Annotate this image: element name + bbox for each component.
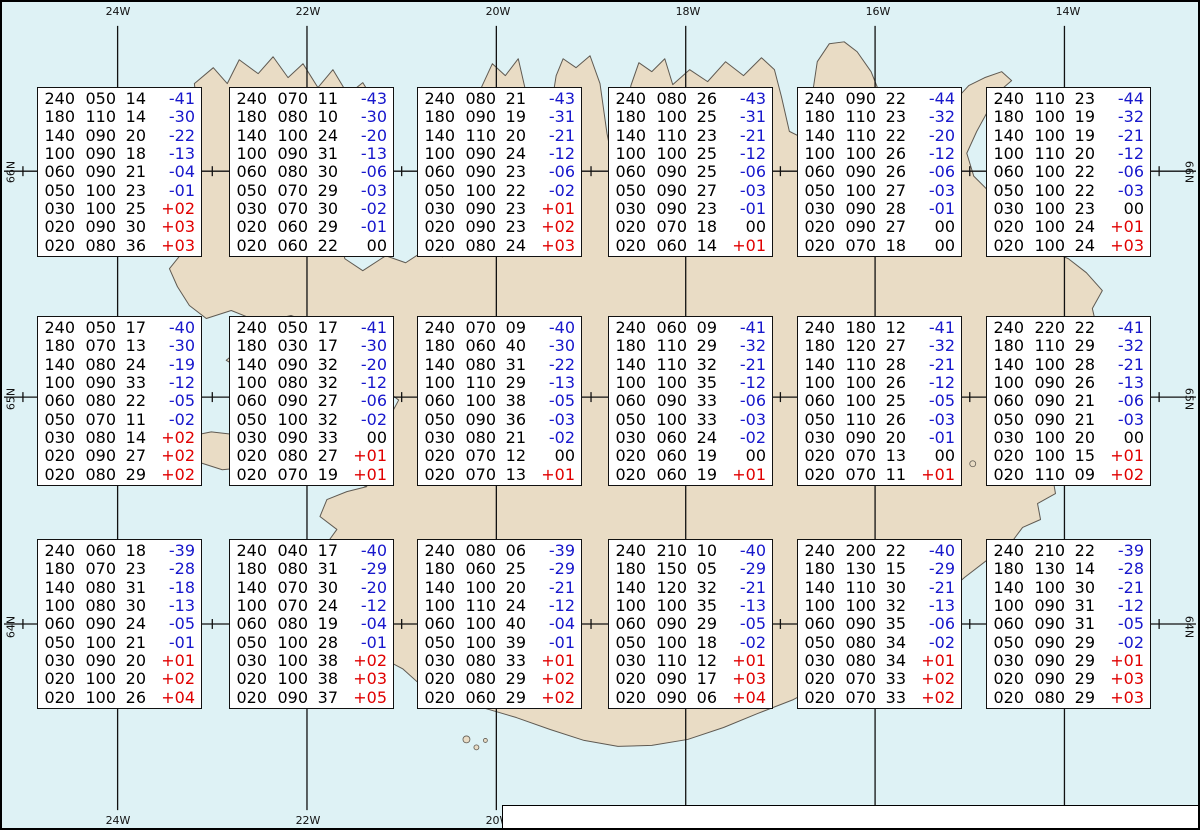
fl-value: 030 [42,652,75,670]
kt-value: 11 [876,466,906,484]
dir-value: 090 [835,429,876,447]
temp-value: -05 [906,392,955,410]
temp-value: +04 [146,689,195,707]
fl-value: 050 [234,411,267,429]
fl-value: 140 [42,579,75,597]
fl-value: 140 [422,127,455,145]
spot-row: 10010026-12 [802,145,955,163]
spot-box-64N-24W: 24006018-3918007023-2814008031-181000803… [37,539,202,709]
temp-value: -04 [338,615,387,633]
kt-value: 18 [876,237,906,255]
kt-value: 38 [308,670,338,688]
kt-value: 20 [496,579,526,597]
fl-value: 020 [422,689,455,707]
temp-value: -02 [526,429,575,447]
spot-box-66N-20W: 24008021-4318009019-3114011020-211000902… [417,87,582,257]
fl-value: 050 [234,182,267,200]
temp-value: -02 [526,182,575,200]
spot-row: 14011028-21 [802,356,955,374]
dir-value: 070 [646,218,687,236]
fl-value: 030 [42,200,75,218]
temp-value: -01 [906,200,955,218]
spot-row: 05011026-03 [802,411,955,429]
spot-row: 14011022-20 [802,127,955,145]
fl-value: 100 [422,374,455,392]
fl-value: 140 [422,579,455,597]
dir-value: 090 [75,447,116,465]
kt-value: 33 [876,670,906,688]
lat-label-left-65N: 65N [5,388,18,410]
spot-row: 02009023+02 [422,218,575,236]
spot-row: 24008026-43 [613,90,766,108]
dir-value: 080 [75,392,116,410]
fl-value: 180 [42,108,75,126]
spot-row: 18008010-30 [234,108,387,126]
dir-value: 090 [455,108,496,126]
spot-row: 03007030-02 [234,200,387,218]
temp-value: +03 [717,670,766,688]
kt-value: 18 [116,542,146,560]
spot-row: 02006029+02 [422,689,575,707]
spot-row: 24020022-40 [802,542,955,560]
temp-value: -12 [526,145,575,163]
dir-value: 100 [75,182,116,200]
spot-row: 24005017-41 [234,319,387,337]
spot-row: 14010024-20 [234,127,387,145]
temp-value: -29 [526,560,575,578]
kt-value: 22 [308,237,338,255]
fl-value: 050 [422,634,455,652]
kt-value: 33 [687,411,717,429]
dir-value: 100 [1024,200,1065,218]
fl-value: 240 [991,90,1024,108]
temp-value: -13 [906,597,955,615]
fl-value: 060 [422,392,455,410]
fl-value: 020 [613,237,646,255]
spot-row: 14010020-21 [422,579,575,597]
kt-value: 33 [116,374,146,392]
spot-row: 03008033+01 [422,652,575,670]
kt-value: 20 [496,127,526,145]
spot-row: 14010019-21 [991,127,1144,145]
dir-value: 070 [835,670,876,688]
lon-label-top-22W: 22W [296,5,321,18]
dir-value: 060 [646,466,687,484]
spot-row: 10009031-13 [234,145,387,163]
lon-label-top-16W: 16W [866,5,891,18]
dir-value: 100 [75,689,116,707]
temp-value: -31 [717,108,766,126]
fl-value: 020 [613,670,646,688]
temp-value: +02 [146,447,195,465]
kt-value: 31 [496,356,526,374]
dir-value: 090 [1024,615,1065,633]
dir-value: 090 [646,182,687,200]
temp-value: -21 [1095,127,1144,145]
kt-value: 27 [687,182,717,200]
kt-value: 19 [687,447,717,465]
kt-value: 24 [1065,237,1095,255]
spot-row: 03009023+01 [422,200,575,218]
kt-value: 27 [308,447,338,465]
dir-value: 060 [267,218,308,236]
temp-value: -39 [526,542,575,560]
kt-value: 23 [116,560,146,578]
temp-value: +01 [146,652,195,670]
temp-value: -05 [1095,615,1144,633]
dir-value: 090 [1024,597,1065,615]
dir-value: 100 [1024,579,1065,597]
fl-value: 180 [802,560,835,578]
temp-value: +01 [906,652,955,670]
fl-value: 060 [422,163,455,181]
kt-value: 29 [496,689,526,707]
spot-row: 02009006+04 [613,689,766,707]
temp-value: -21 [1095,579,1144,597]
dir-value: 070 [267,579,308,597]
lon-label-bottom-24W: 24W [106,814,131,827]
spot-row: 24022022-41 [991,319,1144,337]
dir-value: 110 [455,597,496,615]
kt-value: 32 [687,579,717,597]
spot-row: 10007024-12 [234,597,387,615]
dir-value: 110 [1024,90,1065,108]
temp-value: 00 [526,447,575,465]
fl-value: 140 [991,127,1024,145]
spot-row: 10011020-12 [991,145,1144,163]
spot-row: 24006018-39 [42,542,195,560]
fl-value: 020 [613,689,646,707]
kt-value: 27 [876,218,906,236]
temp-value: 00 [717,218,766,236]
fl-value: 020 [613,447,646,465]
kt-value: 09 [1065,466,1095,484]
kt-value: 26 [876,374,906,392]
dir-value: 110 [835,108,876,126]
dir-value: 090 [75,218,116,236]
lon-label-top-14W: 14W [1056,5,1081,18]
spot-row: 10009018-13 [42,145,195,163]
spot-row: 03009023-01 [613,200,766,218]
spot-row: 10010026-12 [802,374,955,392]
temp-value: -13 [1095,374,1144,392]
dir-value: 090 [1024,411,1065,429]
kt-value: 21 [116,163,146,181]
kt-value: 14 [116,108,146,126]
spot-row: 18008031-29 [234,560,387,578]
fl-value: 240 [613,90,646,108]
temp-value: -03 [526,411,575,429]
spot-row: 02008024+03 [422,237,575,255]
dir-value: 090 [646,163,687,181]
spot-row: 02007013+01 [422,466,575,484]
dir-value: 090 [646,670,687,688]
fl-value: 060 [802,615,835,633]
kt-value: 12 [687,652,717,670]
temp-value: -28 [1095,560,1144,578]
temp-value: -43 [717,90,766,108]
kt-value: 28 [876,200,906,218]
kt-value: 21 [1065,411,1095,429]
fl-value: 240 [234,319,267,337]
temp-value: +02 [526,670,575,688]
spot-row: 02007019+01 [234,466,387,484]
dir-value: 080 [267,560,308,578]
fl-value: 240 [802,319,835,337]
spot-row: 02006019+01 [613,466,766,484]
fl-value: 180 [613,108,646,126]
kt-value: 10 [687,542,717,560]
kt-value: 13 [496,466,526,484]
fl-value: 140 [234,356,267,374]
kt-value: 06 [687,689,717,707]
temp-value: -32 [906,108,955,126]
dir-value: 090 [835,90,876,108]
kt-value: 31 [1065,597,1095,615]
fl-value: 240 [234,90,267,108]
kt-value: 19 [1065,127,1095,145]
kt-value: 23 [687,200,717,218]
temp-value: -05 [717,615,766,633]
spot-row: 05009021-03 [991,411,1144,429]
dir-value: 100 [455,392,496,410]
fl-value: 100 [42,374,75,392]
fl-value: 140 [42,127,75,145]
temp-value: +01 [717,237,766,255]
fl-value: 180 [991,560,1024,578]
temp-value: -13 [146,145,195,163]
spot-row: 02010038+03 [234,670,387,688]
spot-row: 24007011-43 [234,90,387,108]
temp-value: 00 [338,429,387,447]
kt-value: 29 [1065,634,1095,652]
kt-value: 30 [308,579,338,597]
spot-row: 05008034-02 [802,634,955,652]
temp-value: -06 [906,615,955,633]
dir-value: 110 [646,652,687,670]
temp-value: -32 [906,337,955,355]
fl-value: 020 [802,466,835,484]
dir-value: 080 [267,615,308,633]
spot-box-66N-16W: 24009022-4418011023-3214011022-201001002… [797,87,962,257]
kt-value: 24 [116,356,146,374]
fl-value: 020 [991,689,1024,707]
dir-value: 100 [267,127,308,145]
kt-value: 15 [876,560,906,578]
fl-value: 240 [422,319,455,337]
spot-row: 06009029-05 [613,615,766,633]
spot-row: 02008029+03 [991,689,1144,707]
lon-label-top-20W: 20W [486,5,511,18]
kt-value: 19 [496,108,526,126]
temp-value: +03 [1095,670,1144,688]
dir-value: 100 [1024,429,1065,447]
kt-value: 23 [496,200,526,218]
dir-value: 100 [835,182,876,200]
kt-value: 15 [1065,447,1095,465]
dir-value: 060 [646,429,687,447]
kt-value: 22 [1065,182,1095,200]
spot-row: 0200601900 [613,447,766,465]
temp-value: -21 [526,579,575,597]
temp-value: -22 [526,356,575,374]
dir-value: 100 [835,392,876,410]
spot-row: 02007033+02 [802,670,955,688]
temp-value: -12 [338,374,387,392]
spot-row: 14011030-21 [802,579,955,597]
kt-value: 24 [116,615,146,633]
kt-value: 21 [116,634,146,652]
kt-value: 11 [116,411,146,429]
fl-value: 020 [802,447,835,465]
temp-value: -12 [1095,597,1144,615]
spot-row: 10010025-12 [613,145,766,163]
dir-value: 090 [455,411,496,429]
fl-value: 030 [613,652,646,670]
dir-value: 090 [835,615,876,633]
dir-value: 110 [1024,337,1065,355]
kt-value: 28 [1065,356,1095,374]
fl-value: 030 [802,652,835,670]
temp-value: +02 [526,689,575,707]
kt-value: 35 [687,374,717,392]
temp-value: -06 [1095,163,1144,181]
fl-value: 020 [42,237,75,255]
temp-value: -01 [338,634,387,652]
temp-value: -21 [717,356,766,374]
spot-row: 18010025-31 [613,108,766,126]
temp-value: -40 [717,542,766,560]
kt-value: 40 [496,337,526,355]
dir-value: 090 [455,218,496,236]
kt-value: 30 [876,579,906,597]
dir-value: 130 [1024,560,1065,578]
spot-row: 14008031-18 [42,579,195,597]
temp-value: -41 [338,319,387,337]
dir-value: 100 [646,597,687,615]
spot-row: 03009028-01 [802,200,955,218]
spot-row: 05010028-01 [234,634,387,652]
kt-value: 25 [876,392,906,410]
kt-value: 20 [116,670,146,688]
kt-value: 30 [308,163,338,181]
temp-value: -03 [1095,411,1144,429]
temp-value: +01 [906,466,955,484]
spot-box-65N-18W: 24006009-4118011029-3214011032-211001003… [608,316,773,486]
temp-value: -43 [526,90,575,108]
dir-value: 070 [835,237,876,255]
spot-row: 05010018-02 [613,634,766,652]
fl-value: 060 [991,163,1024,181]
lon-label-top-18W: 18W [676,5,701,18]
dir-value: 080 [646,90,687,108]
fl-value: 060 [802,163,835,181]
temp-value: -13 [146,597,195,615]
kt-value: 27 [876,182,906,200]
kt-value: 23 [1065,90,1095,108]
fl-value: 140 [802,356,835,374]
fl-value: 050 [613,634,646,652]
temp-value: -29 [338,560,387,578]
fl-value: 100 [234,597,267,615]
fl-value: 180 [613,337,646,355]
dir-value: 100 [646,108,687,126]
temp-value: +02 [146,466,195,484]
spot-row: 06010040-04 [422,615,575,633]
spot-row: 05007029-03 [234,182,387,200]
spot-row: 14012032-21 [613,579,766,597]
dir-value: 080 [455,237,496,255]
kt-value: 21 [496,90,526,108]
fl-value: 050 [802,411,835,429]
spot-row: 14010030-21 [991,579,1144,597]
kt-value: 29 [116,466,146,484]
dir-value: 100 [455,579,496,597]
temp-value: +01 [1095,447,1144,465]
kt-value: 17 [308,542,338,560]
temp-value: -06 [1095,392,1144,410]
lat-label-left-64N: 64N [5,616,18,638]
spot-row: 18015005-29 [613,560,766,578]
temp-value: -21 [1095,356,1144,374]
temp-value: -06 [338,392,387,410]
kt-value: 24 [1065,218,1095,236]
fl-value: 020 [234,218,267,236]
spot-row: 0301002000 [991,429,1144,447]
dir-value: 090 [1024,374,1065,392]
kt-value: 32 [308,356,338,374]
kt-value: 21 [1065,392,1095,410]
spot-row: 06009021-04 [42,163,195,181]
fl-value: 060 [234,392,267,410]
spot-row: 02010020+02 [42,670,195,688]
kt-value: 28 [308,634,338,652]
kt-value: 28 [876,356,906,374]
kt-value: 29 [687,337,717,355]
spot-row: 02008036+03 [42,237,195,255]
dir-value: 060 [455,337,496,355]
fl-value: 050 [991,411,1024,429]
dir-value: 080 [1024,689,1065,707]
spot-row: 24007009-40 [422,319,575,337]
fl-value: 020 [802,689,835,707]
fl-value: 100 [234,145,267,163]
dir-value: 100 [1024,237,1065,255]
kt-value: 24 [496,145,526,163]
dir-value: 100 [646,374,687,392]
kt-value: 26 [876,145,906,163]
temp-value: +01 [338,447,387,465]
spot-row: 06008030-06 [234,163,387,181]
dir-value: 060 [75,542,116,560]
temp-value: +02 [526,218,575,236]
temp-value: 00 [906,447,955,465]
fl-value: 100 [42,145,75,163]
dir-value: 100 [75,200,116,218]
dir-value: 080 [75,579,116,597]
kt-value: 31 [116,579,146,597]
dir-value: 110 [835,411,876,429]
fl-value: 140 [991,356,1024,374]
temp-value: -05 [526,392,575,410]
fl-value: 020 [802,218,835,236]
spot-row: 14011032-21 [613,356,766,374]
fl-value: 140 [613,579,646,597]
kt-value: 20 [876,429,906,447]
kt-value: 09 [687,319,717,337]
kt-value: 32 [687,356,717,374]
kt-value: 26 [116,689,146,707]
